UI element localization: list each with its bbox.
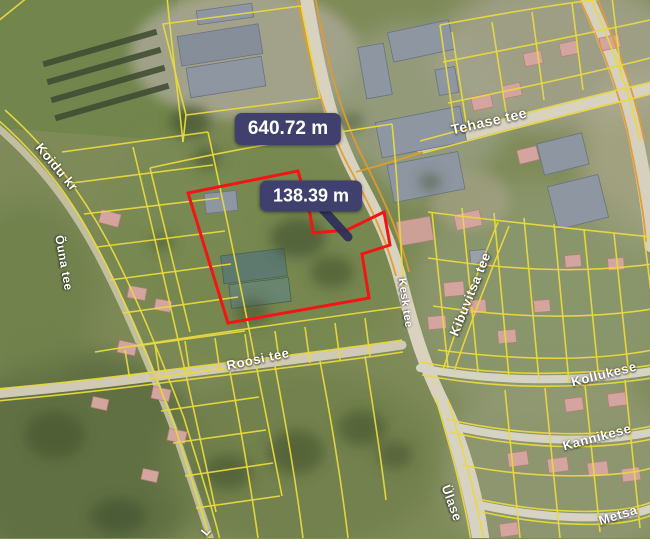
measurement-badge-total: 640.72 m [235, 113, 341, 145]
map-canvas[interactable] [0, 0, 650, 538]
measurement-badge-segment: 138.39 m [260, 181, 362, 212]
